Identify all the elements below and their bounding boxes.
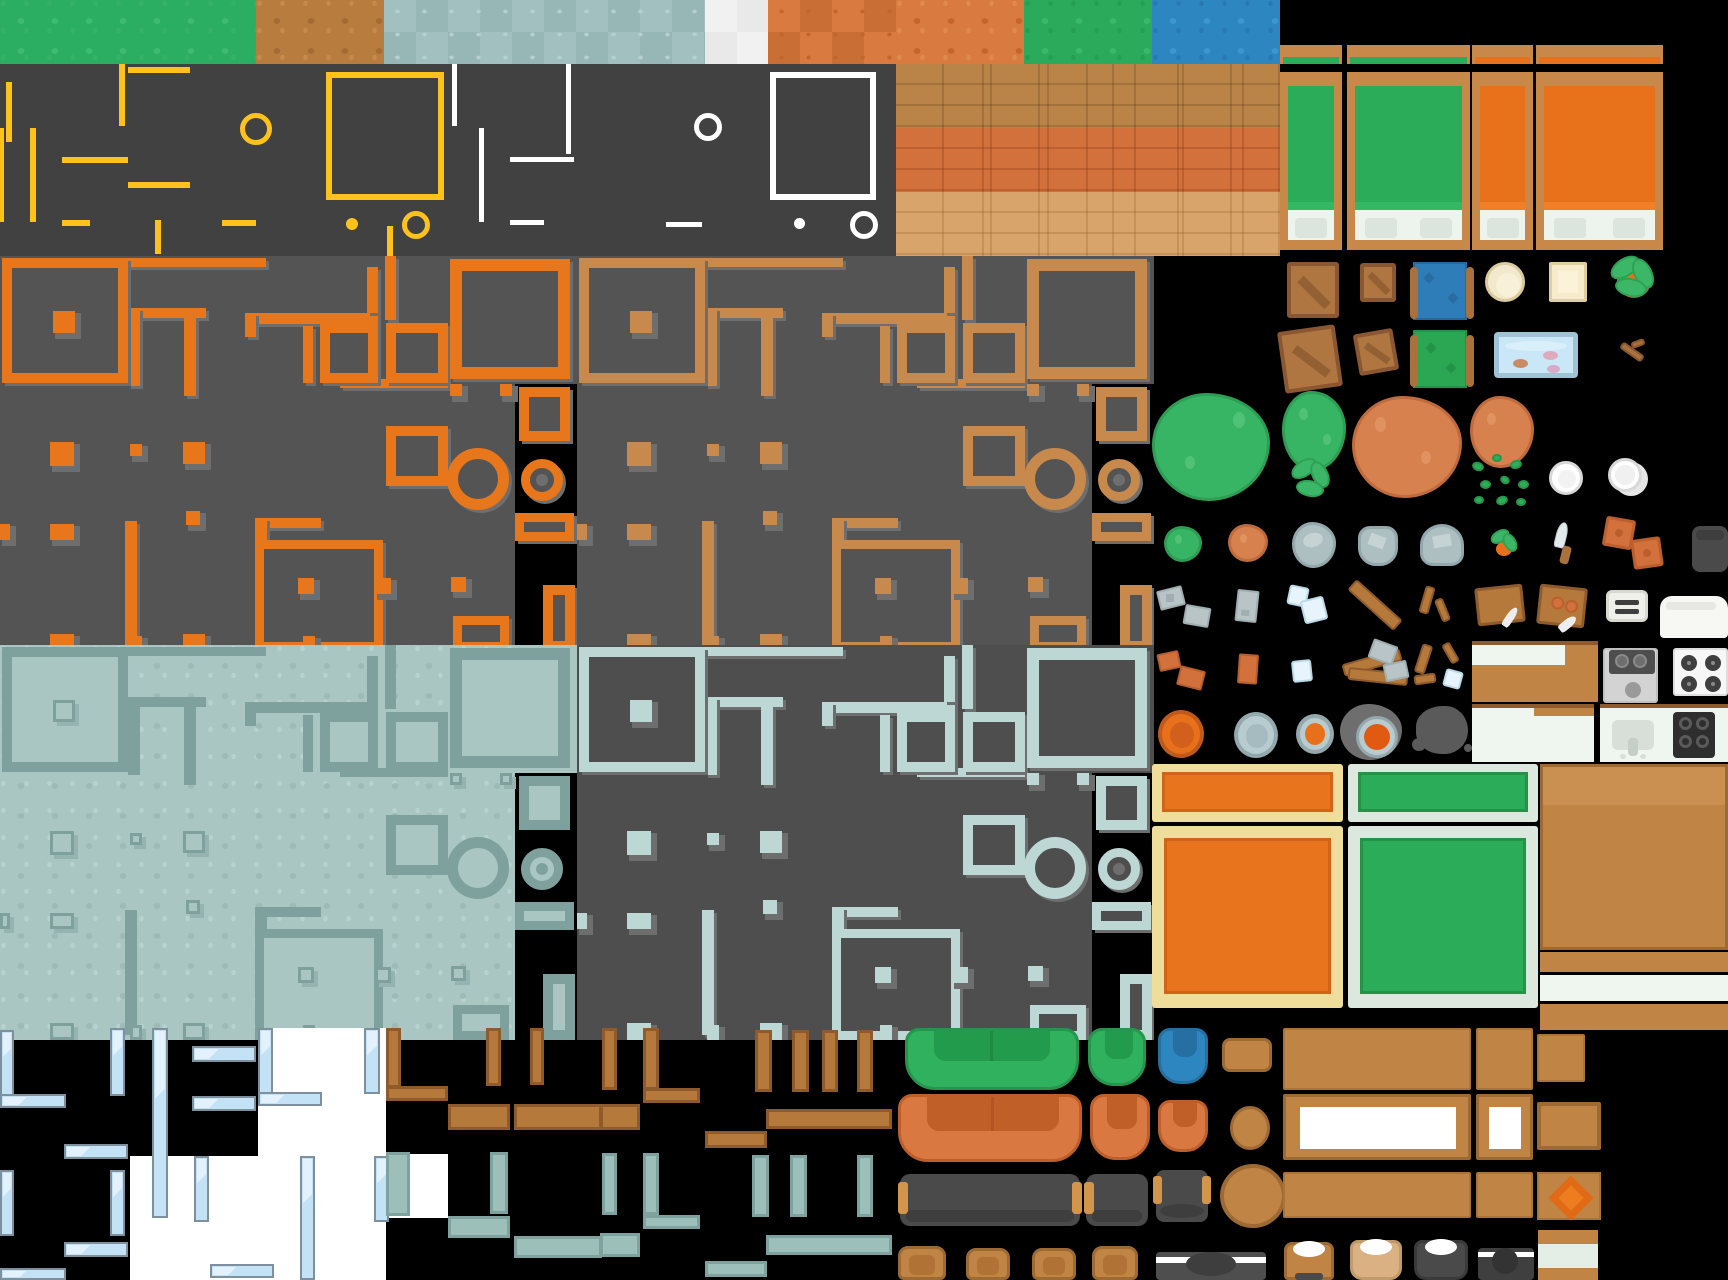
armchair-green (1088, 1028, 1146, 1086)
wall-maze-pale-wall-bar (761, 707, 773, 785)
door-orange-narrow-bottom-rail (1472, 240, 1533, 250)
scattered-peas (1470, 452, 1534, 514)
wood-bits-part (1434, 597, 1451, 623)
yellow-line (387, 226, 393, 256)
bush-orange-part (1487, 413, 1496, 425)
wood-bits (1416, 584, 1456, 628)
fish-tank-part (1547, 365, 1560, 373)
wall-maze-orange-pillar-post (50, 524, 74, 540)
range-white (1673, 648, 1728, 696)
range-white-part (1711, 661, 1715, 665)
floor-maze-pale-wall-bar (128, 697, 140, 775)
toaster-part (1615, 609, 1639, 614)
teal-wall-segment (705, 1261, 767, 1277)
fish-tank (1494, 332, 1578, 378)
wall-maze-pale-wall-bar (705, 697, 717, 775)
teal-wall-segment (602, 1153, 617, 1215)
kitchen-counter-corner-part (1565, 641, 1598, 645)
wall-maze-brown-pillar-post (1027, 384, 1039, 396)
wall-maze-orange-pillar-post (451, 577, 466, 592)
gray-papers-part (1182, 604, 1211, 628)
office-chair-gray-part (1202, 1176, 1211, 1204)
door-orange-narrow-lintel (1472, 45, 1533, 64)
floor-maze-pale-pillar-post (183, 831, 205, 853)
wall-maze-orange-pillar-post (303, 636, 315, 645)
asphalt-road-area (0, 64, 896, 256)
wood-plank-long-part (1347, 579, 1402, 631)
rock-boulder (1292, 522, 1336, 568)
yellow-box-marking (326, 72, 444, 200)
wall-maze-pale-wall-frame (963, 815, 1025, 875)
white-appliance (1660, 596, 1728, 638)
seat-tan-cushion (1350, 1240, 1402, 1280)
white-line (452, 64, 457, 126)
wall-maze-pale-wall-bar (705, 647, 843, 656)
white-dot-marking (794, 218, 805, 229)
yellow-ring-marking (402, 211, 430, 239)
range-white-part (1687, 661, 1691, 665)
floor-maze-pale-wall-bar (385, 645, 396, 709)
wood-crate-small-part (1367, 272, 1390, 295)
table-wood-long (1283, 1028, 1471, 1090)
kitchen-counter-corner-part (1565, 641, 1598, 702)
wall-maze-orange-wall-bar (184, 318, 196, 396)
rug-diamond-orange (1537, 1172, 1601, 1220)
wall-maze-pale-round-pillar (1024, 837, 1086, 899)
wall-maze-brown-pillar-post (577, 524, 587, 540)
pot-orange-filled-part (1305, 723, 1325, 745)
white-wall-tile (320, 1086, 386, 1148)
wall-maze-pale-pillar-post (952, 967, 968, 983)
wall-maze-orange-pillar-post (130, 636, 142, 645)
scattered-peas-part (1499, 474, 1512, 486)
white-box-marking (770, 72, 876, 200)
grass-tile (0, 0, 256, 64)
floor-maze-pale-pillar-post (130, 1025, 142, 1040)
teal-wall-segment (790, 1155, 807, 1217)
white-checker-tile (705, 0, 768, 64)
wall-maze-pale-round-pillar-core (1113, 863, 1125, 875)
seat-gray-stripe-part (1492, 1248, 1518, 1274)
stool-round (1230, 1106, 1270, 1150)
bench-orange-cream-part (1162, 772, 1333, 812)
window-segment-glass-highlight (3, 1097, 63, 1105)
wall-maze-pale-pillar-post (763, 900, 777, 914)
window-segment-glass-highlight (113, 1031, 122, 1093)
bench-gray-part (906, 1210, 1074, 1222)
door-green-wide-lintel (1347, 45, 1470, 64)
rug-green (1413, 330, 1467, 388)
wall-maze-pale-pillar-post (577, 913, 587, 929)
wall-maze-brown-pillar-post (707, 444, 719, 456)
seat-tan-cushion-part (1360, 1239, 1392, 1255)
window-segment-glass-highlight (213, 1267, 271, 1275)
wall-maze-orange-pillar-post (130, 444, 142, 456)
wall-maze-orange-wall-bar (245, 313, 256, 337)
wall-maze-brown-wall-frame (963, 323, 1025, 383)
chair-brown-part (1043, 1257, 1065, 1275)
wood-counter-shelf-part (1540, 952, 1728, 972)
bush-large (1152, 393, 1270, 501)
wall-maze-orange-pillar-post (500, 384, 512, 396)
bench-orange-cream (1152, 764, 1343, 822)
stove-unit-part (1615, 654, 1629, 668)
wood-wall-segment (822, 1030, 838, 1092)
wall-maze-brown-pillar-post (952, 578, 968, 594)
wood-wall-segment (514, 1104, 602, 1130)
wall-maze-brown-wall-frame (832, 540, 960, 645)
toaster (1606, 590, 1648, 622)
door-green-wide-bottom-rail (1347, 240, 1470, 250)
wall-maze-pale-wall-bar (822, 702, 833, 726)
wall-maze-pale-pillar-post (875, 967, 891, 983)
orange-box-tile-part (1642, 548, 1651, 557)
wall-maze-brown-pillar-post (1077, 384, 1089, 396)
fish-tank-part (1505, 341, 1567, 351)
wall-maze-brown-pillar-post (760, 634, 782, 645)
rug-square-cream (1549, 262, 1587, 302)
door-green-wide-lintel-strip (1350, 57, 1467, 64)
door-green-wide (1347, 72, 1470, 250)
table-wood-short (1476, 1028, 1533, 1090)
seat-white-cushion-part (1295, 1273, 1323, 1280)
wood-crate-small (1360, 263, 1396, 302)
table-green-mint (1348, 826, 1538, 1008)
floor-maze-pale-pillar-post (450, 773, 462, 785)
white-line (510, 157, 574, 162)
wood-crate-part (1297, 276, 1330, 309)
door-orange-narrow (1472, 72, 1533, 250)
floor-maze-pale-pillar-post (500, 773, 512, 785)
scattered-peas-part (1492, 454, 1502, 462)
wall-maze-orange-wall-bar (303, 326, 313, 383)
door-orange-wide-top-rail (1536, 72, 1663, 86)
wall-maze-pale-pillar-post (1027, 773, 1039, 785)
rock-boulder-part (1302, 531, 1325, 550)
teal-wall-segment (643, 1153, 659, 1215)
plate-stack (1606, 456, 1650, 498)
sink-and-cooktop-part (1620, 754, 1626, 759)
door-orange-wide-mat (1613, 218, 1645, 238)
bench-green-mint-part (1358, 772, 1528, 812)
orange-card (1237, 653, 1259, 684)
potted-plant (1607, 256, 1657, 304)
wall-maze-orange-wall-frame (386, 323, 448, 383)
table-wood-white-inset-short (1476, 1094, 1533, 1160)
wall-maze-brown-pillar-post (880, 636, 892, 645)
bench-green-mint (1348, 764, 1538, 822)
wall-maze-pale-wall-frame (1092, 902, 1151, 930)
rug-green-part (1410, 335, 1418, 387)
rug-square-cream-part (1558, 271, 1578, 293)
wall-maze-orange-pillar-post (53, 311, 75, 333)
wall-maze-pale-wall-bar (880, 715, 890, 772)
rug-blue-part (1466, 267, 1474, 319)
sink-and-cooktop-part (1696, 735, 1709, 748)
white-appliance-part (1666, 602, 1716, 610)
wall-maze-pale-wall-frame (963, 712, 1025, 772)
wall-maze-orange-wall-frame (543, 585, 575, 645)
orange-cards-part (1176, 665, 1206, 691)
yellow-line (62, 220, 90, 226)
wall-maze-brown-pillar-post (627, 634, 651, 645)
wall-maze-pale-round-pillar (1098, 848, 1140, 890)
floor-maze-pale-wall-bar (184, 707, 196, 785)
door-green-wide-body (1355, 86, 1462, 202)
wall-maze-pale-pillar-post (707, 833, 719, 845)
floor-maze-pale-wall-frame (386, 712, 448, 772)
floor-maze-pale-wall-bar (245, 702, 256, 726)
wall-maze-pale-wall-frame (1096, 776, 1147, 830)
cutting-board-tomato-part (1564, 599, 1578, 613)
wall-maze-orange-pillar-post (50, 634, 74, 645)
fish-tank-part (1513, 359, 1528, 368)
teal-wall-segment (386, 1152, 410, 1216)
door-green-narrow-left-rail (1280, 72, 1288, 250)
wall-maze-pale-wall-frame (832, 929, 960, 1040)
floor-maze-pale-pillar-post (451, 966, 466, 981)
kitchen-counter (1472, 704, 1594, 762)
teal-wall-segment (766, 1235, 892, 1255)
wood-wall-segment (600, 1104, 640, 1130)
wall-maze-brown-wall-bar (944, 267, 955, 313)
cutting-board-tomato-part (1557, 614, 1578, 634)
chair-brown-part (977, 1257, 999, 1275)
table-wood-white-inset-part (1300, 1107, 1456, 1149)
gray-papers (1182, 604, 1216, 630)
door-orange-wide-mat (1554, 218, 1586, 238)
wall-maze-pale-wall-bar (832, 907, 844, 929)
scattered-peas-part (1474, 496, 1484, 504)
sprite-sheet-canvas (0, 0, 1728, 1280)
wall-maze-orange-wall-bar (255, 518, 267, 540)
armchair-orange-part (1107, 1097, 1137, 1129)
table-wood-short (1476, 1172, 1533, 1218)
toaster-part (1615, 600, 1639, 605)
side-table (1222, 1038, 1272, 1072)
floor-maze-pale-wall-bar (125, 910, 137, 1035)
scattered-peas-part (1495, 494, 1509, 507)
yellow-line (30, 128, 36, 222)
window-segment-glass-highlight (113, 1173, 122, 1233)
wood-counter-shelf-part (1540, 975, 1728, 1001)
sink-and-cooktop (1600, 704, 1728, 762)
yellow-line (155, 220, 161, 254)
door-green-narrow-body-strip (1288, 202, 1334, 210)
office-chair-gray (1156, 1170, 1208, 1222)
yellow-line (119, 64, 125, 126)
door-green-wide-body-strip (1355, 202, 1462, 210)
door-green-narrow-bottom-rail (1280, 240, 1342, 250)
armchair-orange (1090, 1094, 1150, 1160)
plate-stack-part (1615, 465, 1635, 485)
white-line (479, 128, 484, 222)
table-round (1220, 1164, 1286, 1228)
rug-round-cream-part (1496, 273, 1520, 297)
bush-small-green (1164, 526, 1202, 562)
teal-wall-segment (752, 1155, 769, 1217)
seat-white-cushion (1284, 1242, 1334, 1280)
knife (1548, 520, 1576, 566)
stone-tile (384, 0, 705, 64)
wall-maze-orange-pillar-post (183, 634, 205, 645)
rug-blue-part (1447, 292, 1458, 303)
bush-large-part (1185, 456, 1195, 469)
wall-maze-brown-wall-bar (880, 326, 890, 383)
orange-box-tile (1630, 536, 1664, 570)
wood-wall-segment (386, 1028, 401, 1088)
wall-maze-orange-round-pillar (521, 459, 563, 501)
floor-maze-pale-wall-bar (255, 907, 267, 929)
bush-large-part (1233, 412, 1245, 428)
white-line (666, 222, 702, 227)
wall-maze-orange-pillar-post (0, 524, 10, 540)
door-green-narrow-body (1288, 86, 1334, 202)
wall-maze-pale-wall-frame (897, 712, 955, 772)
armchair-orange-small-part (1173, 1103, 1197, 1127)
window-segment-glass-highlight (195, 1049, 253, 1059)
wood-crate-small-tilted-part (1364, 342, 1391, 364)
door-orange-wide-right-rail (1655, 72, 1663, 250)
door-orange-narrow-right-rail (1525, 72, 1533, 250)
door-orange-narrow-top-rail (1472, 72, 1533, 86)
door-orange-wide-body (1544, 86, 1655, 202)
rock-gem (1358, 526, 1398, 566)
floor-maze-pale-wall-frame (450, 648, 570, 768)
floor-maze-pale (0, 645, 577, 1040)
wood-wall-segment (705, 1131, 767, 1148)
roasting-pan-dark (1692, 526, 1728, 572)
door-orange-narrow-body (1480, 86, 1525, 202)
wall-maze-orange-wall-frame (519, 387, 570, 441)
plant-small (1488, 528, 1520, 558)
teal-wall-segment (448, 1216, 510, 1238)
seat-gray-stripe (1478, 1248, 1534, 1280)
wall-maze-pale-wall-bar (702, 910, 714, 1035)
wall-maze-orange-wall-bar (125, 521, 137, 645)
wall-maze-pale-pillar-post (627, 913, 651, 929)
window-segment-glass-highlight (303, 1159, 312, 1277)
office-chair-gray-part (1153, 1176, 1162, 1204)
teal-wall-segment (857, 1155, 873, 1217)
plank-pile (1340, 640, 1412, 696)
dark-spill-part (1464, 744, 1472, 752)
wall-maze-orange-pillar-post (50, 442, 74, 466)
table-wood-white-inset (1283, 1094, 1471, 1160)
wall-maze-orange-wall-frame (450, 259, 570, 379)
door-orange-narrow-body-strip (1480, 202, 1525, 210)
wall-maze-orange-wall-bar (367, 267, 378, 313)
rock-pentagon (1420, 524, 1464, 566)
wall-maze-pale-wall-bar (944, 656, 955, 702)
armchair-blue (1158, 1028, 1208, 1084)
floor-maze-pale-wall-frame (519, 776, 570, 830)
wood-floor-brown (896, 64, 1280, 128)
bed-striped (1538, 1230, 1598, 1280)
sink-and-cooktop-part (1679, 735, 1692, 748)
door-orange-wide-lintel-strip (1539, 57, 1660, 64)
wood-plank-long (1340, 576, 1410, 634)
wood-floor-red (896, 128, 1280, 192)
wall-maze-brown-pillar-post (875, 578, 891, 594)
rug-blue-part (1410, 267, 1418, 319)
white-ring-marking (694, 113, 722, 141)
door-orange-narrow-mat (1487, 218, 1519, 238)
rug-green-part (1445, 362, 1456, 373)
dirt-tile (256, 0, 384, 64)
bench-gray-part (1072, 1182, 1082, 1214)
window-segment-glass-highlight (3, 1173, 11, 1233)
door-orange-narrow-left-rail (1472, 72, 1480, 250)
yellow-ring-marking (240, 113, 272, 145)
wall-maze-brown-wall-frame (1092, 513, 1151, 541)
ice-cube (1291, 659, 1313, 683)
white-wall-tile (130, 1156, 386, 1280)
door-green-wide-left-rail (1347, 72, 1355, 250)
wall-maze-pale-wall-frame (1027, 648, 1147, 768)
white-ring-marking (850, 211, 878, 239)
wall-maze-orange-pillar-post (183, 442, 205, 464)
floor-maze-pale-round-pillar (521, 848, 563, 890)
chair-brown (898, 1246, 946, 1280)
orange-speckle-tile (896, 0, 1024, 64)
wall-maze-brown (577, 256, 1154, 645)
cutting-board-part (1501, 606, 1520, 629)
scattered-peas-part (1518, 480, 1529, 489)
pot-orange-part (1170, 722, 1194, 748)
sink-and-cooktop-part (1628, 738, 1638, 756)
wall-maze-orange-pillar-post (450, 384, 462, 396)
armchair-orange-small (1158, 1100, 1208, 1152)
pan-with-spill (1340, 700, 1406, 762)
bench-gray-part (898, 1182, 908, 1214)
bench-gray (900, 1174, 1080, 1226)
wall-maze-brown-pillar-post (630, 311, 652, 333)
tree-orange (1352, 396, 1462, 498)
bush-medium-part (1323, 434, 1331, 445)
seat-dark-cushion (1414, 1240, 1468, 1280)
floor-maze-pale-pillar-post (183, 1023, 205, 1040)
bench-gray-small (1086, 1174, 1148, 1226)
floor-maze-pale-pillar-post (0, 913, 10, 929)
wood-counter-block-part (1543, 767, 1725, 805)
seat-dark-cushion-part (1425, 1239, 1457, 1255)
floor-maze-pale-pillar-post (375, 967, 391, 983)
yellow-line (0, 128, 4, 222)
cutting-board (1474, 584, 1526, 627)
chair-brown-part (909, 1255, 935, 1275)
fish-tank-part (1543, 351, 1558, 360)
bed-striped-part (1538, 1230, 1598, 1244)
rug-green-part (1466, 335, 1474, 387)
yellow-line (62, 157, 128, 163)
window-segment-glass-highlight (3, 1033, 11, 1093)
couch-orange-part (991, 1097, 994, 1131)
bench-gray-small-part (1084, 1182, 1094, 1214)
door-green-wide-right-rail (1462, 72, 1470, 250)
wall-maze-brown-wall-bar (822, 313, 833, 337)
teal-wall-segment (600, 1233, 640, 1257)
wall-maze-brown-pillar-post (707, 636, 719, 645)
white-line (510, 220, 544, 225)
wood-wall-segment (755, 1030, 772, 1092)
wall-maze-brown-wall-bar (702, 521, 714, 645)
table-green-mint-part (1360, 838, 1526, 994)
table-orange-cream-part (1164, 838, 1331, 994)
rug-blue (1413, 262, 1467, 320)
wall-maze-brown-wall-frame (963, 426, 1025, 486)
window-segment-glass-highlight (367, 1031, 377, 1091)
